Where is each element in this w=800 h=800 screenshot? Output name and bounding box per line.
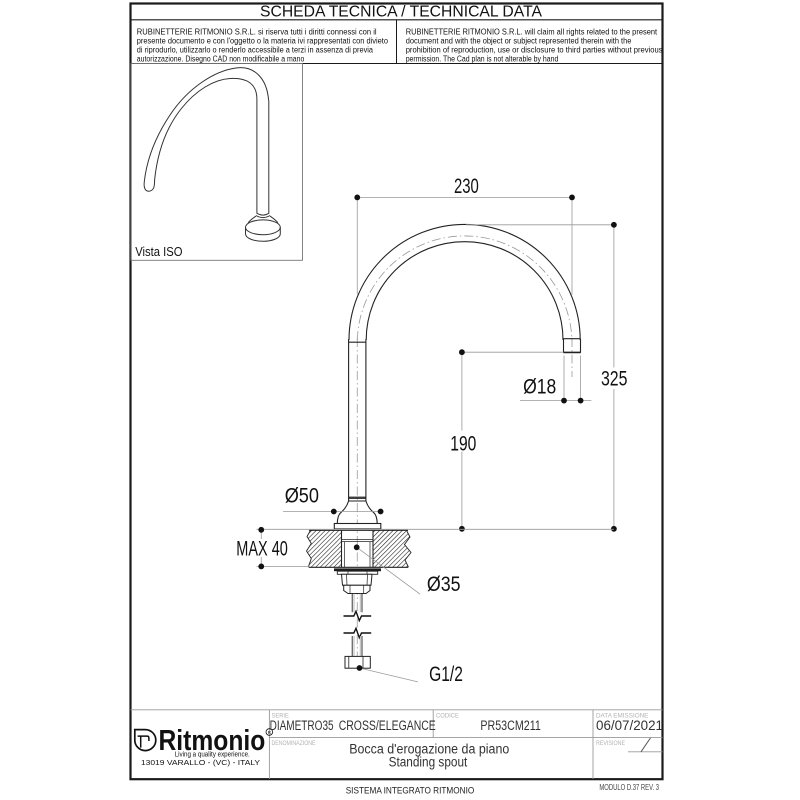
svg-text:prohibition of reproduction,: prohibition of reproduction, use or disc…: [406, 46, 663, 55]
svg-text:Standing spout: Standing spout: [389, 755, 468, 770]
svg-text:DIAMETRO35: DIAMETRO35: [270, 718, 334, 733]
svg-text:G1/2: G1/2: [429, 662, 463, 686]
svg-text:Ø18: Ø18: [523, 374, 556, 398]
svg-text:di riprodurlo, utilizzarlo o r: di riprodurlo, utilizzarlo o renderlo ac…: [137, 46, 374, 55]
svg-text:RUBINETTERIE RITMONIO S.R.L. s: RUBINETTERIE RITMONIO S.R.L. si riserva …: [137, 28, 377, 37]
svg-text:SCHEDA TECNICA / TECHNICAL DAT: SCHEDA TECNICA / TECHNICAL DATA: [260, 3, 543, 20]
svg-text:PR53CM211: PR53CM211: [480, 718, 540, 733]
svg-text:document and with the object o: document and with the object or subject …: [406, 37, 632, 46]
svg-text:Ø35: Ø35: [427, 572, 461, 596]
svg-text:CODICE: CODICE: [436, 713, 459, 719]
svg-text:CROSS/ELEGANCE: CROSS/ELEGANCE: [339, 718, 436, 733]
svg-text:13019 VARALLO - (VC) - ITALY: 13019 VARALLO - (VC) - ITALY: [141, 758, 260, 767]
svg-text:RUBINETTERIE RITMONIO S.R.L.: RUBINETTERIE RITMONIO S.R.L. will claim …: [406, 28, 658, 37]
svg-text:autorizzazione. Disegno CAD no: autorizzazione. Disegno CAD non modifica…: [137, 55, 305, 64]
svg-text:06/07/2021: 06/07/2021: [596, 718, 663, 733]
svg-text:SISTEMA INTEGRATO RITMONIO: SISTEMA INTEGRATO RITMONIO: [346, 785, 475, 795]
svg-text:190: 190: [450, 432, 476, 456]
svg-text:MAX 40: MAX 40: [236, 536, 288, 560]
svg-text:MODULO D.37 REV. 3: MODULO D.37 REV. 3: [599, 783, 659, 792]
svg-text:presente documento e con l'ogg: presente documento e con l'oggetto o la …: [137, 37, 389, 46]
svg-text:230: 230: [454, 174, 479, 198]
svg-text:REVISIONE: REVISIONE: [596, 741, 625, 747]
svg-text:DENOMINAZIONE: DENOMINAZIONE: [272, 741, 316, 747]
svg-text:Ø50: Ø50: [285, 483, 319, 507]
svg-text:permission. The Cad plan is n: permission. The Cad plan is not alterabl…: [406, 55, 559, 64]
svg-text:325: 325: [601, 366, 628, 390]
svg-text:Vista ISO: Vista ISO: [135, 245, 182, 259]
